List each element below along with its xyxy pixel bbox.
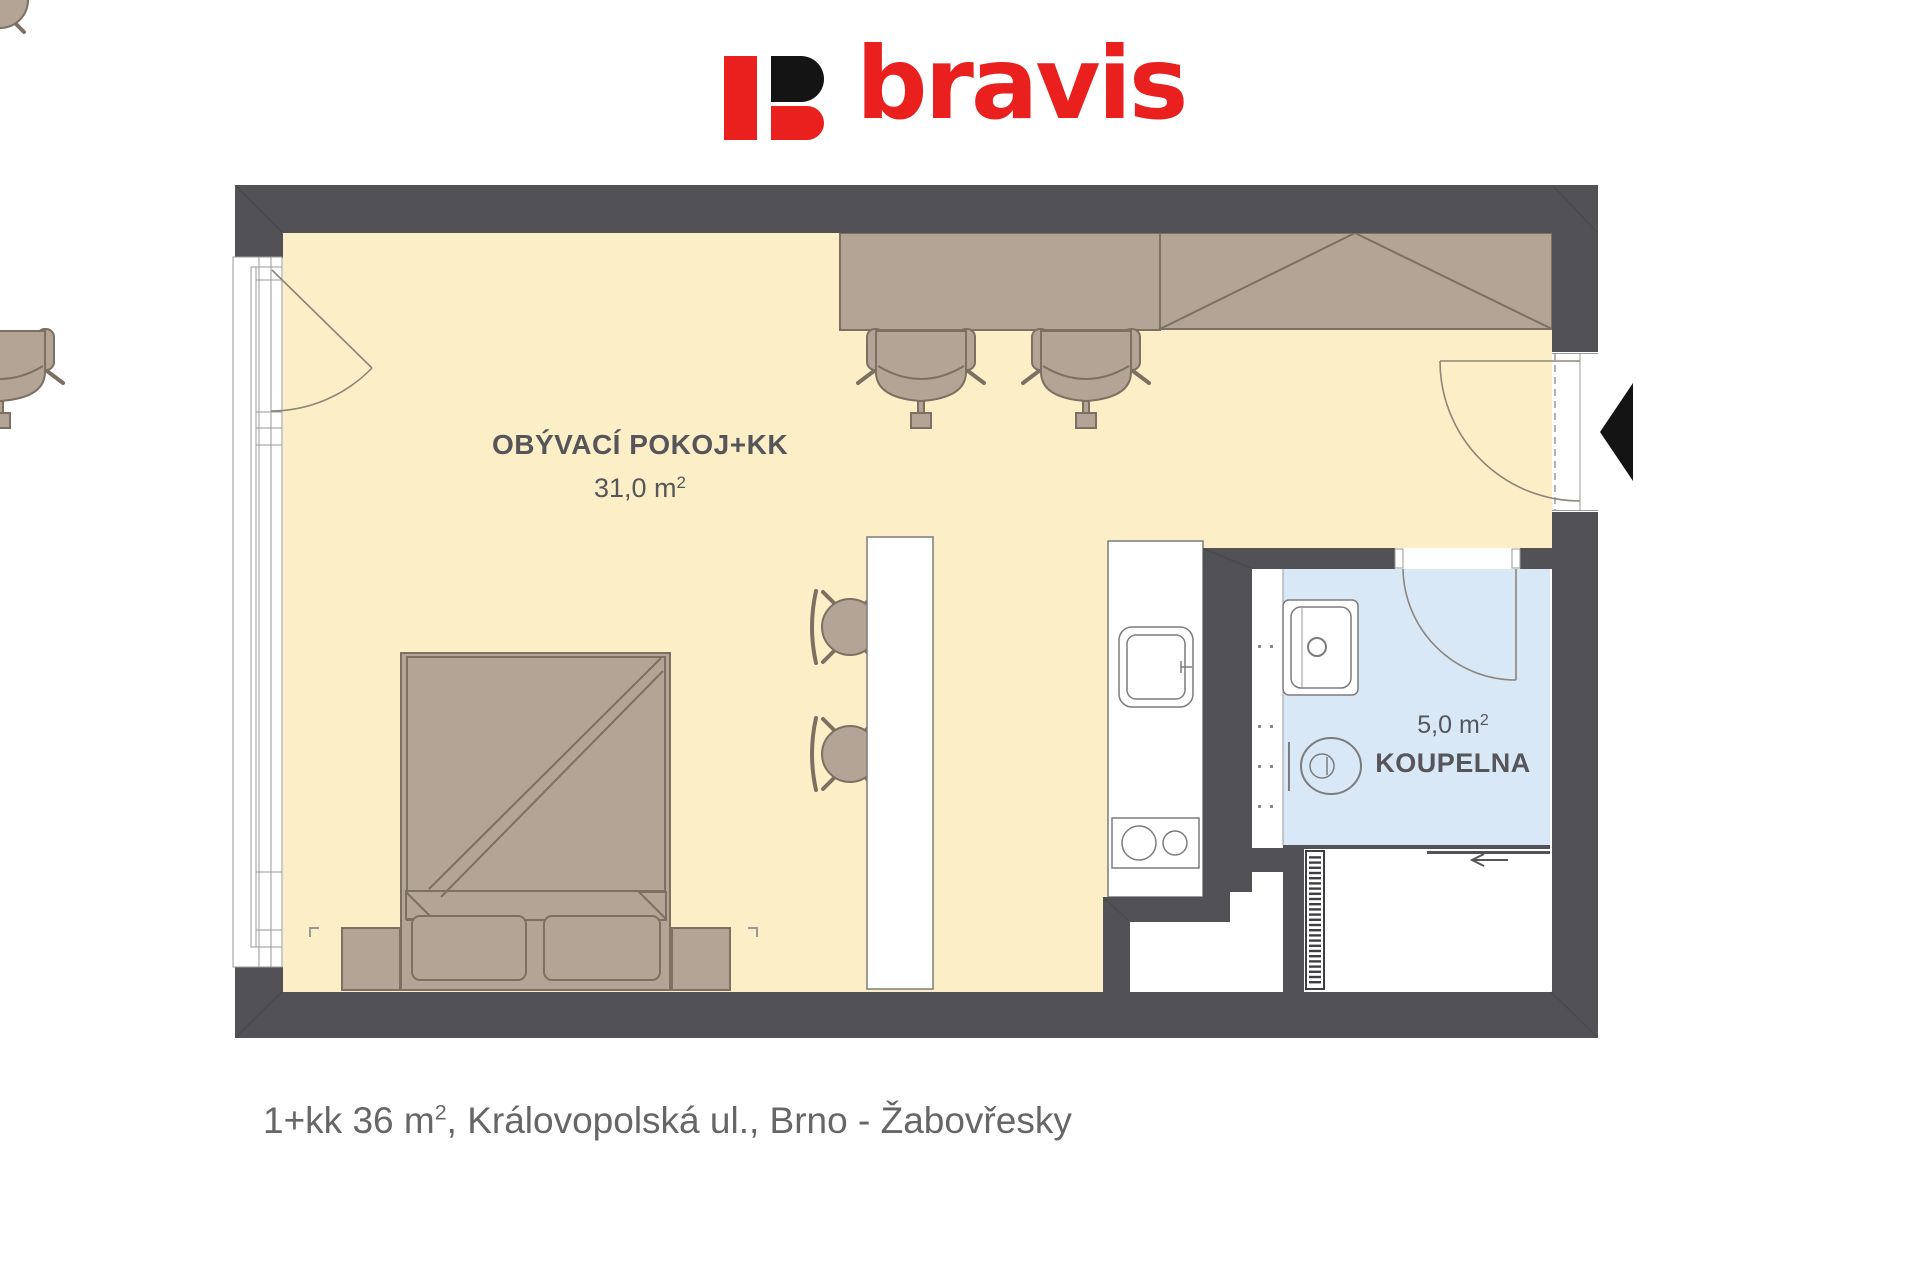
wall-bath-top-right <box>1520 548 1552 569</box>
listing-caption: 1+kk 36 m2, Královopolská ul., Brno - Ža… <box>263 1100 1072 1142</box>
wall-below-bath-left <box>1283 845 1304 992</box>
floor-plan-page: bravis <box>0 0 1920 1280</box>
wall-bath-top-left <box>1252 548 1395 569</box>
wall-bath-bottom-line <box>1304 845 1550 849</box>
bar-counter <box>867 537 933 989</box>
room-label-bathroom: KOUPELNA <box>1375 748 1531 778</box>
wall-top <box>235 185 1598 233</box>
desk-table <box>840 233 1160 330</box>
kitchen-counter <box>1108 541 1203 897</box>
nightstand-right <box>672 928 730 990</box>
wall-left-lower <box>235 967 283 992</box>
hall-threshold-line <box>1427 851 1550 854</box>
wardrobe <box>1160 233 1552 329</box>
washbasin <box>1283 600 1358 695</box>
hall-floor <box>1304 850 1550 991</box>
wall-left-upper <box>235 233 283 258</box>
wall-right-upper <box>1552 233 1598 352</box>
utility-shaft <box>1252 569 1283 848</box>
pillow-right <box>544 916 660 980</box>
wall-right-lower <box>1552 512 1598 992</box>
floor-plan: OBÝVACÍ POKOJ+KK 31,0 m2 5,0 m2 KOUPELNA <box>0 0 1920 1280</box>
mattress <box>407 657 665 920</box>
entrance-marker-triangle <box>1600 383 1633 481</box>
wall-bottom <box>235 992 1598 1038</box>
wall-shaft-gap <box>1252 848 1283 872</box>
area-label-living: 31,0 m2 <box>594 473 686 503</box>
room-label-living: OBÝVACÍ POKOJ+KK <box>492 429 788 460</box>
window-glass-line <box>251 267 256 947</box>
towel-radiator <box>1306 851 1324 989</box>
area-label-bathroom: 5,0 m2 <box>1417 711 1489 739</box>
nightstand-left <box>342 928 400 990</box>
pillow-left <box>412 916 526 980</box>
